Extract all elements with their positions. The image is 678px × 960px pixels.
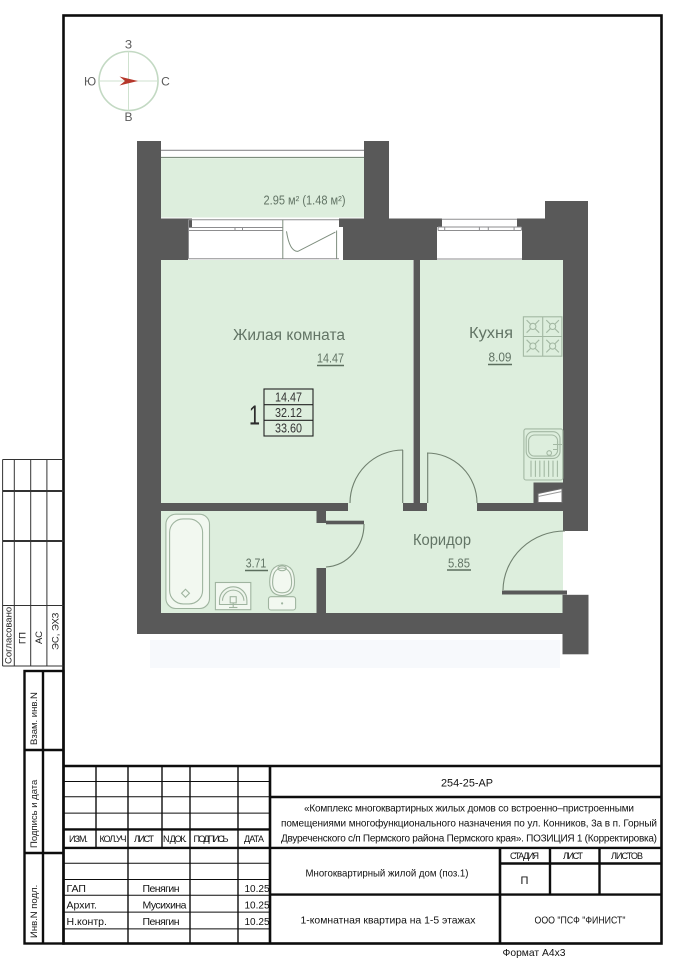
- svg-text:Двуреченского с/п Пермского ра: Двуреченского с/п Пермского района Пермс…: [281, 834, 657, 845]
- svg-text:Инв.N подл.: Инв.N подл.: [29, 885, 40, 938]
- svg-text:АС: АС: [34, 631, 45, 644]
- svg-text:Пенягин: Пенягин: [143, 883, 180, 895]
- svg-text:ДАТА: ДАТА: [244, 834, 264, 844]
- svg-text:Пенягин: Пенягин: [143, 916, 180, 928]
- svg-text:ЭС, ЭХЗ: ЭС, ЭХЗ: [51, 612, 62, 650]
- svg-text:14.47: 14.47: [317, 352, 344, 366]
- svg-text:ЛИСТ: ЛИСТ: [563, 851, 584, 861]
- svg-text:Формат А4х3: Формат А4х3: [503, 947, 566, 959]
- svg-text:КОЛ.УЧ: КОЛ.УЧ: [100, 834, 127, 844]
- svg-text:Ю: Ю: [84, 75, 96, 89]
- svg-text:З: З: [125, 38, 132, 52]
- svg-text:3.71: 3.71: [246, 557, 267, 571]
- svg-text:Многоквартирный жилой дом (поз: Многоквартирный жилой дом (поз.1): [306, 868, 469, 880]
- svg-text:32.12: 32.12: [275, 406, 302, 420]
- svg-text:С: С: [161, 75, 170, 89]
- svg-text:ГП: ГП: [18, 632, 29, 644]
- svg-text:N ДОК.: N ДОК.: [163, 834, 187, 844]
- svg-text:2.95 м² (1.48 м²): 2.95 м² (1.48 м²): [264, 193, 346, 208]
- svg-text:Мусихина: Мусихина: [143, 900, 187, 912]
- svg-text:СТАДИЯ: СТАДИЯ: [510, 851, 539, 861]
- svg-text:1: 1: [249, 400, 260, 431]
- svg-text:ГАП: ГАП: [67, 883, 86, 895]
- svg-text:Коридор: Коридор: [413, 532, 471, 549]
- svg-text:П: П: [521, 875, 529, 887]
- svg-text:Кухня: Кухня: [469, 325, 513, 342]
- svg-text:Взам. инв.N: Взам. инв.N: [29, 692, 40, 745]
- svg-text:8.09: 8.09: [489, 351, 512, 365]
- svg-text:33.60: 33.60: [275, 422, 302, 436]
- svg-text:Согласовано:: Согласовано:: [4, 604, 15, 664]
- svg-text:14.47: 14.47: [275, 391, 302, 405]
- svg-text:ООО "ПСФ "ФИНИСТ": ООО "ПСФ "ФИНИСТ": [535, 915, 626, 927]
- svg-text:ИЗМ.: ИЗМ.: [69, 834, 88, 844]
- svg-text:Подпись и дата: Подпись и дата: [29, 779, 40, 848]
- svg-text:10.25: 10.25: [244, 884, 269, 895]
- svg-text:В: В: [124, 110, 132, 124]
- svg-text:1-комнатная квартира на 1-5 эт: 1-комнатная квартира на 1-5 этажах: [301, 915, 477, 927]
- svg-text:Н.контр.: Н.контр.: [67, 916, 107, 928]
- svg-text:Архит.: Архит.: [67, 900, 97, 912]
- svg-text:Жилая комната: Жилая комната: [233, 327, 345, 344]
- svg-text:ЛИСТОВ: ЛИСТОВ: [611, 851, 643, 861]
- svg-text:ЛИСТ: ЛИСТ: [134, 834, 155, 844]
- svg-text:10.25: 10.25: [244, 901, 269, 912]
- svg-text:5.85: 5.85: [448, 557, 470, 571]
- svg-text:10.25: 10.25: [244, 917, 269, 928]
- svg-text:помещениями многофункционально: помещениями многофункционального назначе…: [281, 818, 657, 830]
- svg-text:ПОДПИСЬ: ПОДПИСЬ: [194, 834, 229, 844]
- svg-text:«Комплекс многоквартирных жилы: «Комплекс многоквартирных жилых домов со…: [304, 804, 634, 815]
- svg-text:254-25-АР: 254-25-АР: [441, 778, 493, 790]
